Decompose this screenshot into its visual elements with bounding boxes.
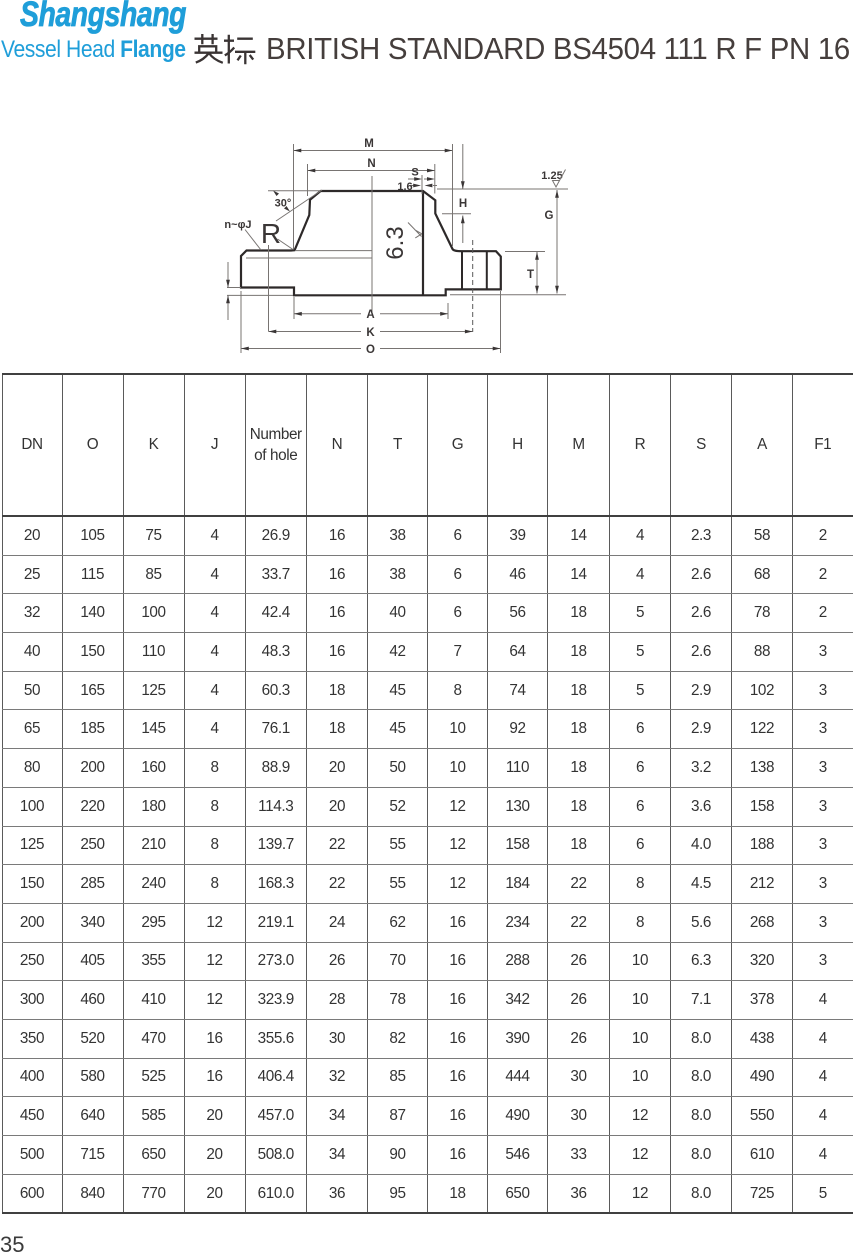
svg-text:n~φJ: n~φJ [224, 219, 251, 231]
svg-text:M: M [364, 138, 374, 150]
svg-text:O: O [366, 344, 375, 356]
svg-text:30°: 30° [275, 198, 292, 210]
svg-text:S: S [411, 167, 418, 179]
svg-text:1.6: 1.6 [397, 181, 412, 193]
svg-text:A: A [366, 309, 374, 321]
svg-text:T: T [527, 269, 534, 281]
svg-text:N: N [367, 158, 375, 170]
svg-text:G: G [545, 210, 554, 222]
svg-text:H: H [459, 198, 467, 210]
svg-text:6.3: 6.3 [382, 226, 409, 259]
svg-text:R: R [261, 218, 281, 249]
svg-text:K: K [366, 327, 375, 339]
